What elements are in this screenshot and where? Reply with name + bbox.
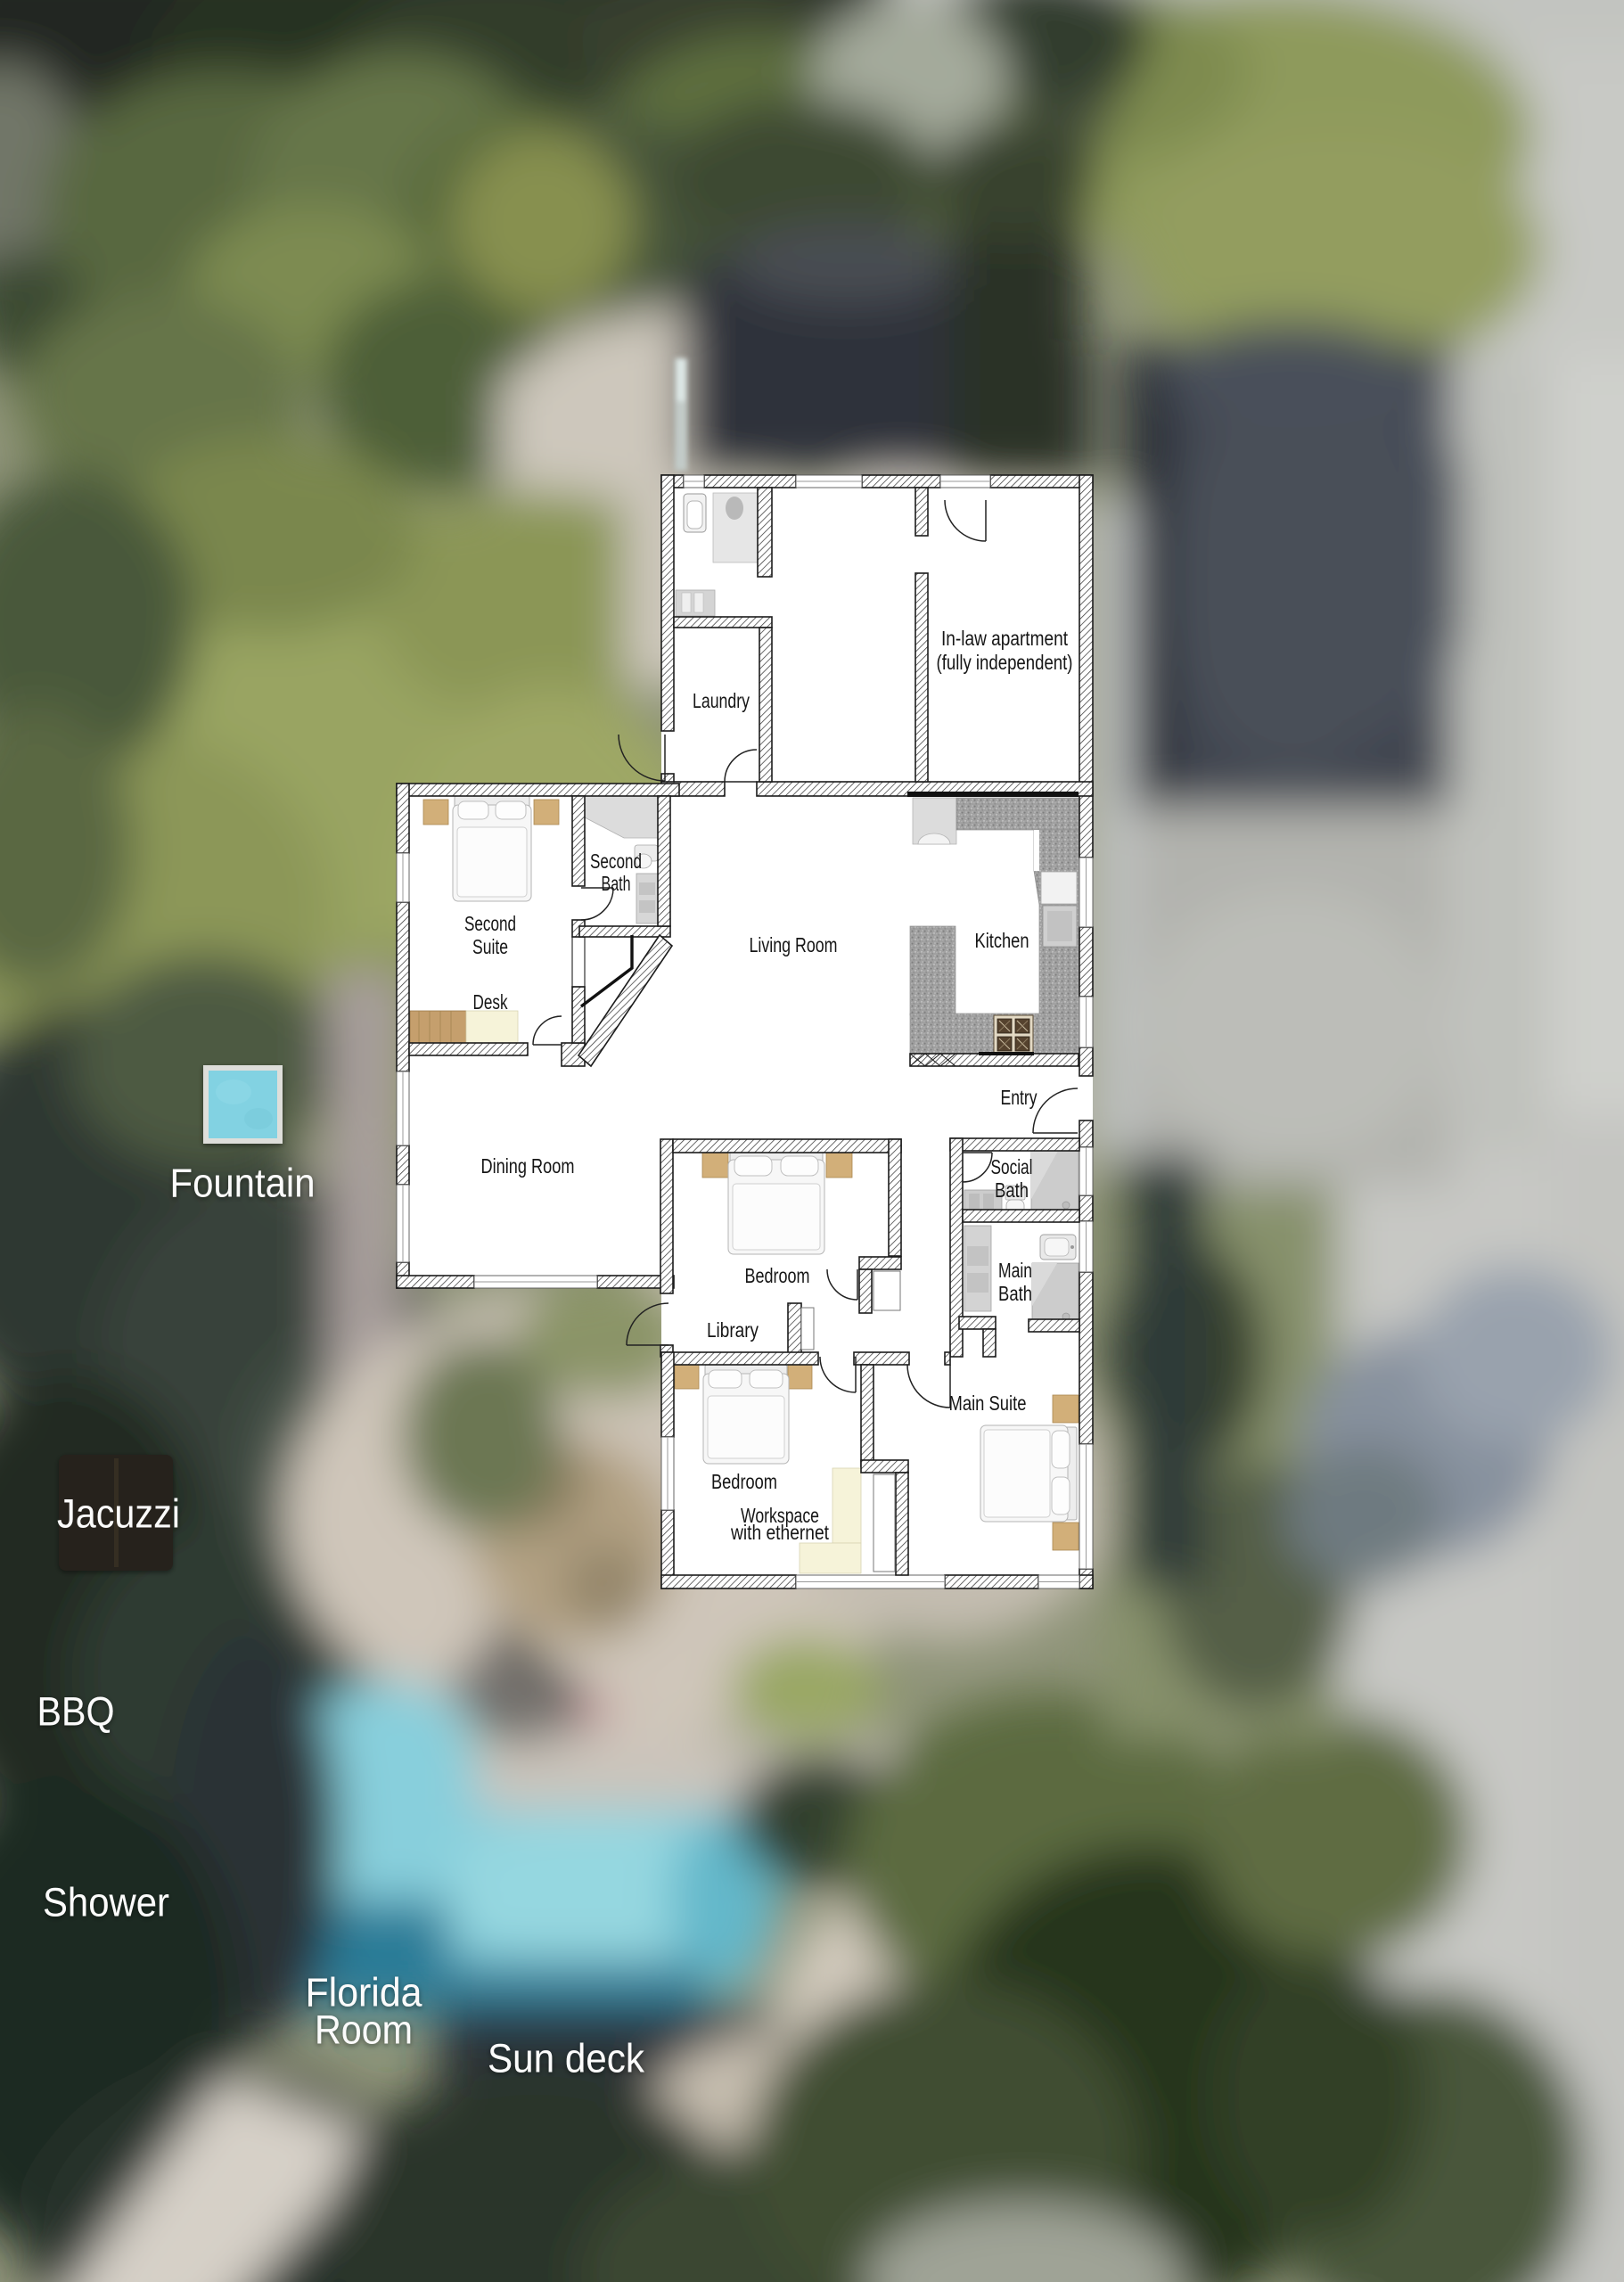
svg-text:Library: Library bbox=[707, 1318, 759, 1342]
svg-text:Bedroom: Bedroom bbox=[711, 1470, 777, 1493]
svg-text:Bedroom: Bedroom bbox=[745, 1264, 810, 1287]
svg-text:Laundry: Laundry bbox=[693, 689, 750, 712]
svg-text:Dining Room: Dining Room bbox=[481, 1154, 575, 1178]
svg-text:Second: Second bbox=[464, 912, 516, 935]
svg-text:Kitchen: Kitchen bbox=[975, 929, 1029, 952]
svg-text:Bath: Bath bbox=[602, 872, 631, 895]
svg-text:Living Room: Living Room bbox=[750, 933, 838, 956]
svg-text:Sun deck: Sun deck bbox=[488, 2036, 644, 2081]
svg-text:Entry: Entry bbox=[1001, 1086, 1038, 1109]
svg-text:Social: Social bbox=[991, 1155, 1033, 1178]
svg-text:Shower: Shower bbox=[43, 1880, 169, 1925]
svg-text:Second: Second bbox=[590, 850, 642, 873]
svg-text:with ethernet: with ethernet bbox=[730, 1521, 829, 1544]
svg-text:In-law apartment: In-law apartment bbox=[941, 627, 1068, 650]
svg-text:Main Suite: Main Suite bbox=[949, 1391, 1027, 1415]
svg-text:(fully independent): (fully independent) bbox=[937, 651, 1073, 674]
svg-text:Jacuzzi: Jacuzzi bbox=[57, 1491, 180, 1537]
svg-text:Desk: Desk bbox=[473, 990, 508, 1014]
svg-text:Fountain: Fountain bbox=[170, 1161, 316, 1206]
svg-text:Bath: Bath bbox=[995, 1178, 1029, 1202]
svg-text:BBQ: BBQ bbox=[37, 1689, 115, 1735]
svg-text:Main: Main bbox=[998, 1259, 1032, 1282]
svg-text:Suite: Suite bbox=[472, 935, 508, 958]
svg-text:Room: Room bbox=[315, 2007, 413, 2053]
svg-text:Bath: Bath bbox=[998, 1282, 1032, 1305]
